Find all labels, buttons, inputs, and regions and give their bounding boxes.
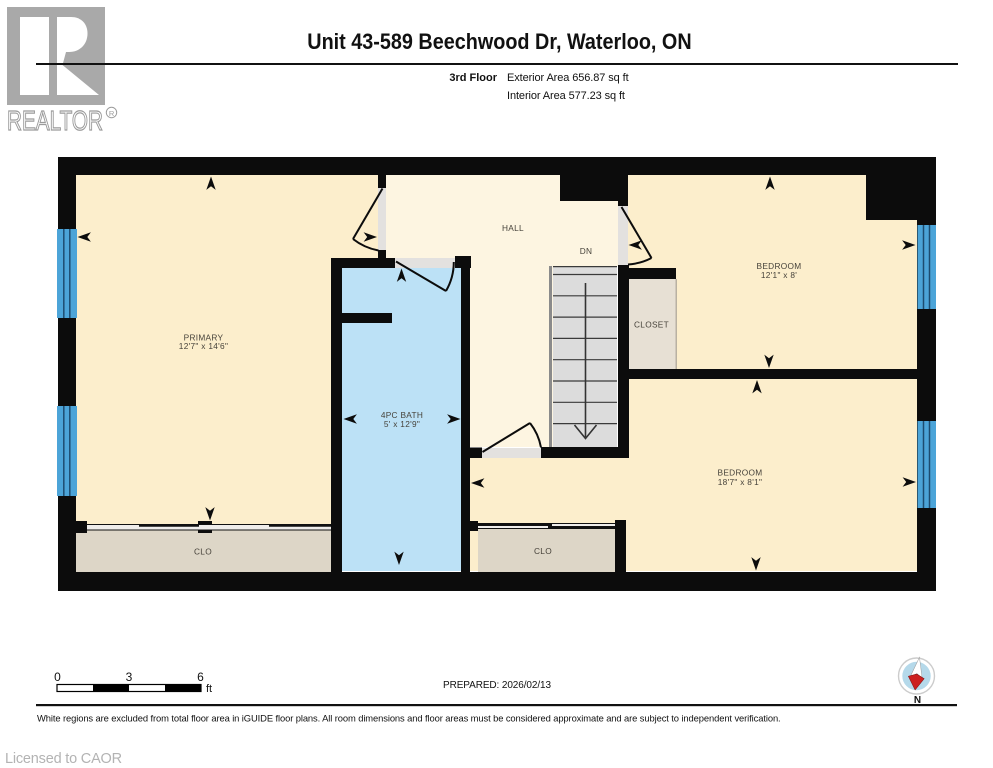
svg-text:3: 3 [126,670,133,684]
svg-text:Licensed to CAOR: Licensed to CAOR [5,751,122,767]
svg-text:BEDROOM: BEDROOM [718,468,763,478]
svg-text:CLOSET: CLOSET [634,320,669,330]
svg-text:CLO: CLO [534,546,552,556]
svg-text:PREPARED: 2026/02/13: PREPARED: 2026/02/13 [443,680,551,691]
svg-text:0: 0 [54,670,61,684]
svg-text:HALL: HALL [502,223,524,233]
svg-text:ft: ft [206,683,212,695]
svg-text:18'7" x 8'1": 18'7" x 8'1" [718,477,763,487]
svg-text:6: 6 [197,670,204,684]
svg-text:DN: DN [580,246,593,256]
svg-text:5' x 12'9": 5' x 12'9" [384,419,420,429]
svg-text:White regions are excluded fro: White regions are excluded from total fl… [37,713,781,724]
svg-text:12'1" x 8': 12'1" x 8' [761,270,797,280]
svg-text:CLO: CLO [194,547,212,557]
svg-text:12'7" x 14'6": 12'7" x 14'6" [179,341,228,351]
